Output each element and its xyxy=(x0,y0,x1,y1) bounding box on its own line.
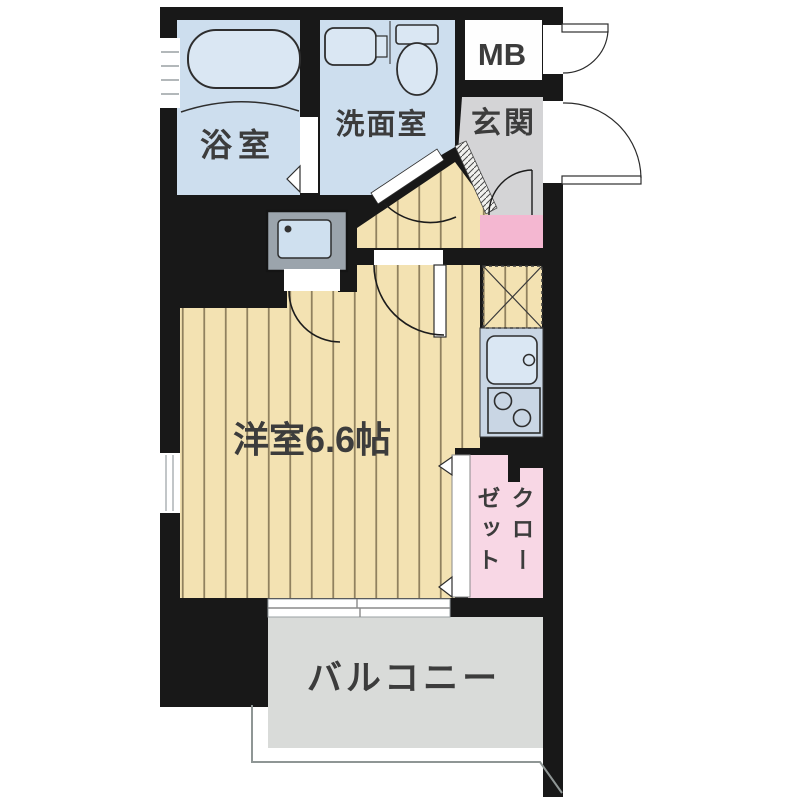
washer-nook-opening xyxy=(284,269,340,291)
mb-door-leaf xyxy=(562,24,608,32)
entrance-door-opening xyxy=(543,101,563,183)
stove-icon xyxy=(488,388,540,433)
stove-burner-icon xyxy=(514,410,531,427)
bathroom-door xyxy=(300,117,318,193)
stove-burner-icon xyxy=(495,393,512,410)
entrance-hall-mat xyxy=(480,215,543,248)
closet-label: クローゼット xyxy=(470,486,538,604)
room-window-icon xyxy=(160,453,180,513)
western-room-label: 洋室6.6帖 xyxy=(233,419,391,460)
balcony-label: バルコニー xyxy=(307,659,501,698)
floor-plan-drawing: 浴室 洗面室 MB 玄関 洋室6.6帖 バルコニー xyxy=(0,0,800,800)
room-door-opening xyxy=(374,250,443,265)
toilet-bowl-icon xyxy=(397,43,437,95)
floor-plan-page: 浴室 洗面室 MB 玄関 洋室6.6帖 バルコニー クローゼット xyxy=(0,0,800,800)
washer-knob xyxy=(285,226,292,233)
washer-screen xyxy=(278,220,331,258)
closet-pillar-b xyxy=(508,448,520,482)
faucet-icon xyxy=(524,355,535,366)
meter-box-label: MB xyxy=(478,37,526,72)
bathroom-window-icon xyxy=(160,38,180,108)
room-door-leaf xyxy=(434,265,446,337)
bathroom-label: 浴室 xyxy=(200,127,276,163)
washroom-label: 洗面室 xyxy=(335,107,428,141)
toilet-tank-icon xyxy=(396,25,438,44)
wall-bottom-left-block xyxy=(160,598,268,707)
mb-door-opening xyxy=(543,25,563,74)
entrance-door-swing-arc-icon xyxy=(563,103,641,178)
bathtub-icon xyxy=(188,30,300,88)
entrance-door-leaf xyxy=(562,176,641,184)
entrance-label: 玄関 xyxy=(471,106,537,140)
closet-folding-door xyxy=(452,455,470,597)
washbasin-counter-tab xyxy=(376,36,387,57)
washing-machine-icon xyxy=(267,211,347,271)
washbasin-icon xyxy=(325,28,376,65)
mb-door-swing-arc-icon xyxy=(563,31,608,73)
